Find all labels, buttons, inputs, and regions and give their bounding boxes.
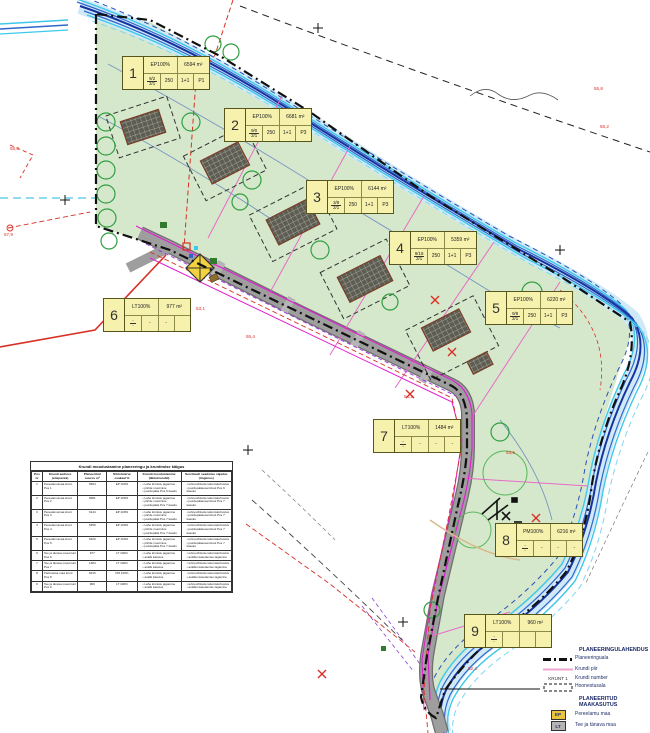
table-row: 3Pereelamumaa krunt Pos 36144EP 100%Lahe…: [32, 509, 232, 523]
legend-item: LTTee ja tänava maa: [541, 721, 649, 731]
building-area-icon: [541, 683, 575, 692]
plot-parking: P3: [460, 248, 476, 264]
shelter-icon: [160, 222, 167, 228]
ep-swatch-icon: EP: [541, 710, 575, 720]
plot-setback: 250: [523, 308, 539, 324]
plot-storeys-fraction: 3/8 2/1: [328, 197, 344, 213]
plot-parking: -: [444, 436, 460, 452]
plot-parking: [535, 631, 551, 647]
plot-storeys-fraction: 9/18 2/1: [411, 248, 427, 264]
plot-number: 7: [374, 420, 395, 452]
plot-parking: [174, 315, 190, 331]
plot-number: 6: [104, 299, 125, 331]
plot-area: 6144 m²: [361, 181, 394, 197]
legend-item-label: Krundi piir: [575, 667, 598, 673]
plot-units: -: [428, 436, 444, 452]
plot-area: 1484 m²: [428, 420, 461, 436]
plot-setback: [502, 631, 518, 647]
plot-units: 1+1: [177, 73, 193, 89]
elevation-label: 55,4: [246, 334, 255, 339]
plot-setback: 250: [262, 125, 278, 141]
plot-area: 6220 m²: [540, 292, 573, 308]
table-title: Krundi moodustamine planeeringu ja krunt…: [31, 462, 232, 471]
plot-label-box: 7 LT100% 1484 m² - - - - -: [373, 419, 461, 453]
legend-item: KRUNT 1Krundi number: [541, 676, 649, 682]
plot-line-icon: [541, 665, 575, 674]
boundary-line-icon: [541, 655, 575, 664]
plot-landuse: EP100%: [411, 232, 444, 248]
plot-area: 6681 m²: [279, 109, 312, 125]
table-row: 1Pereelamumaa krunt Pos 16594EP 100%Lahe…: [32, 482, 232, 496]
plot-landuse: LT100%: [125, 299, 158, 315]
elevation-label: 58,3: [10, 146, 19, 151]
plot-parking: P3: [377, 197, 393, 213]
plot-units: -: [158, 315, 174, 331]
plot-label-box: 3 EP100% 6144 m² 3/8 2/1 250 1+1 P3: [306, 180, 394, 214]
table-header-cell: Krundi moodustamine (lähtekrundid): [137, 472, 181, 482]
table-row: 5Pereelamumaa krunt Pos 56220EP 100%Lahe…: [32, 537, 232, 551]
shelter-icon: [210, 258, 217, 264]
plot-storeys-fraction: - -: [125, 315, 141, 331]
legend-section2-title: PLANEERITUD MAAKASUTUS: [579, 696, 649, 708]
table-row: 9Tee ja tänava maa krunt Pos 9960LT 100%…: [32, 581, 232, 591]
table-header-cell: Sihtotstarve osakaal %: [107, 472, 137, 482]
plot-area: 960 m²: [519, 615, 552, 631]
plot-units: 1+1: [279, 125, 295, 141]
plot-number: 2: [225, 109, 246, 141]
plot-storeys-fraction: 9/8 2/1: [507, 308, 523, 324]
legend-section1-items: PlaneeringualaKrundi piirKRUNT 1Krundi n…: [541, 655, 649, 692]
plot-landuse: LT100%: [395, 420, 428, 436]
detail-plan-sheet: Krundi moodustamine planeeringu ja krunt…: [0, 0, 650, 733]
plot-storeys-fraction: - -: [486, 631, 502, 647]
legend-item-label: Pereelamu maa: [575, 712, 610, 718]
plot-info-grid: EP100% 6681 m² 9/0 2/1 250 1+1 P3: [246, 109, 311, 141]
plot-info-grid: EP100% 6220 m² 9/8 2/1 250 1+1 P3: [507, 292, 572, 324]
elevation-label: 54,2: [404, 394, 413, 399]
plot-area: 5359 m²: [444, 232, 477, 248]
plot-setback: -: [533, 540, 549, 556]
legend-section2-items: EPPereelamu maaLTTee ja tänava maaPMPark…: [541, 710, 649, 733]
plot-units: -: [550, 540, 566, 556]
plot-landuse: PM100%: [517, 524, 550, 540]
plot-landuse: LT100%: [486, 615, 519, 631]
legend-item: EPPereelamu maa: [541, 710, 649, 720]
legend-item-label: Hoonestusala: [575, 684, 606, 690]
elevation-label: 52,4: [468, 666, 477, 671]
elevation-label: 57,9: [4, 232, 13, 237]
plot-units: 1+1: [361, 197, 377, 213]
utility-node-icon: [194, 246, 198, 250]
plot-units: 1+1: [444, 248, 460, 264]
legend-item: Krundi piir: [541, 665, 649, 674]
krunt-text-icon: KRUNT 1: [541, 676, 575, 681]
table-row: 8Parkmetsa maa krunt Pos 86216PM 100%Lah…: [32, 571, 232, 581]
plot-storeys-fraction: - -: [395, 436, 411, 452]
plot-setback: 250: [427, 248, 443, 264]
plot-label-box: 1 EP100% 6594 m² 9/2 2/1 250 1+1 P1: [122, 56, 210, 90]
legend-item-label: Tee ja tänava maa: [575, 723, 616, 729]
plot-info-grid: PM100% 6216 m² - - - - -: [517, 524, 582, 556]
plot-label-box: 8 PM100% 6216 m² - - - - -: [495, 523, 583, 557]
elevation-label: 53,6: [506, 450, 515, 455]
plot-setback: 250: [160, 73, 176, 89]
plot-units: [519, 631, 535, 647]
plot-storeys-fraction: - -: [517, 540, 533, 556]
plot-number: 3: [307, 181, 328, 213]
plot-storeys-fraction: 9/0 2/1: [246, 125, 262, 141]
plot-info-grid: EP100% 5359 m² 9/18 2/1 250 1+1 P3: [411, 232, 476, 264]
plot-parking: P3: [556, 308, 572, 324]
plot-setback: 250: [344, 197, 360, 213]
site-plan-map: [0, 0, 650, 733]
plot-number: 9: [465, 615, 486, 647]
plot-label-box: 2 EP100% 6681 m² 9/0 2/1 250 1+1 P3: [224, 108, 312, 142]
map-legend: PLANEERINGULAHENDUS PlaneeringualaKrundi…: [541, 647, 649, 733]
plot-setback: -: [141, 315, 157, 331]
plot-label-box: 4 EP100% 5359 m² 9/18 2/1 250 1+1 P3: [389, 231, 477, 265]
plot-label-box: 5 EP100% 6220 m² 9/8 2/1 250 1+1 P3: [485, 291, 573, 325]
table-row: 7Tee ja tänava maa krunt Pos 71484LT 100…: [32, 561, 232, 571]
plot-landuse: EP100%: [507, 292, 540, 308]
plot-landuse: EP100%: [328, 181, 361, 197]
legend-item: Planeeringuala: [541, 655, 649, 664]
elevation-label: 53,1: [196, 306, 205, 311]
plot-info-grid: LT100% 977 m² - - - -: [125, 299, 190, 331]
table-row: 6Tee ja tänava maa krunt Pos 6977LT 100%…: [32, 551, 232, 561]
table-header-cell: Pos nr: [32, 472, 43, 482]
elevation-label: 56,2: [600, 124, 609, 129]
plot-parking: P3: [295, 125, 311, 141]
table-row: 4Pereelamumaa krunt Pos 45359EP 100%Lahe…: [32, 523, 232, 537]
plot-info-grid: LT100% 960 m² - -: [486, 615, 551, 647]
table-header-cell: Planeeritud suurus m²: [78, 472, 107, 482]
plot-setback: -: [411, 436, 427, 452]
plot-area: 6594 m²: [177, 57, 210, 73]
plot-parking: -: [566, 540, 582, 556]
ditch-top-left: [0, 20, 68, 34]
lt-swatch-icon: LT: [541, 721, 575, 731]
plot-area: 6216 m²: [550, 524, 583, 540]
utility-node-icon: [189, 254, 193, 258]
table-header-cell: Servituudi seadmise vajadus (tingimus): [181, 472, 231, 482]
legend-item: Hoonestusala: [541, 683, 649, 692]
plot-number: 8: [496, 524, 517, 556]
legend-section1-title: PLANEERINGULAHENDUS: [579, 647, 649, 653]
plot-info-grid: EP100% 6594 m² 9/2 2/1 250 1+1 P1: [144, 57, 209, 89]
plot-storeys-fraction: 9/2 2/1: [144, 73, 160, 89]
plot-info-grid: EP100% 6144 m² 3/8 2/1 250 1+1 P3: [328, 181, 393, 213]
plot-info-grid: LT100% 1484 m² - - - - -: [395, 420, 460, 452]
plot-label-box: 6 LT100% 977 m² - - - -: [103, 298, 191, 332]
elevation-label: 55,8: [594, 86, 603, 91]
plot-landuse: EP100%: [246, 109, 279, 125]
legend-item-label: Planeeringuala: [575, 656, 608, 662]
table-row: 2Pereelamumaa krunt Pos 26681EP 100%Lahe…: [32, 495, 232, 509]
plot-number: 1: [123, 57, 144, 89]
plot-label-box: 9 LT100% 960 m² - -: [464, 614, 552, 648]
plot-number: 5: [486, 292, 507, 324]
table-grid: Pos nrKrundi aadress (ettepanek)Planeeri…: [31, 471, 232, 592]
plot-landuse: EP100%: [144, 57, 177, 73]
table-header-cell: Krundi aadress (ettepanek): [43, 472, 78, 482]
legend-item-label: Krundi number: [575, 676, 608, 682]
plot-area: 977 m²: [158, 299, 191, 315]
plot-parking: P1: [193, 73, 209, 89]
plot-number: 4: [390, 232, 411, 264]
plot-formation-table: Krundi moodustamine planeeringu ja krunt…: [30, 461, 233, 593]
plot-units: 1+1: [540, 308, 556, 324]
